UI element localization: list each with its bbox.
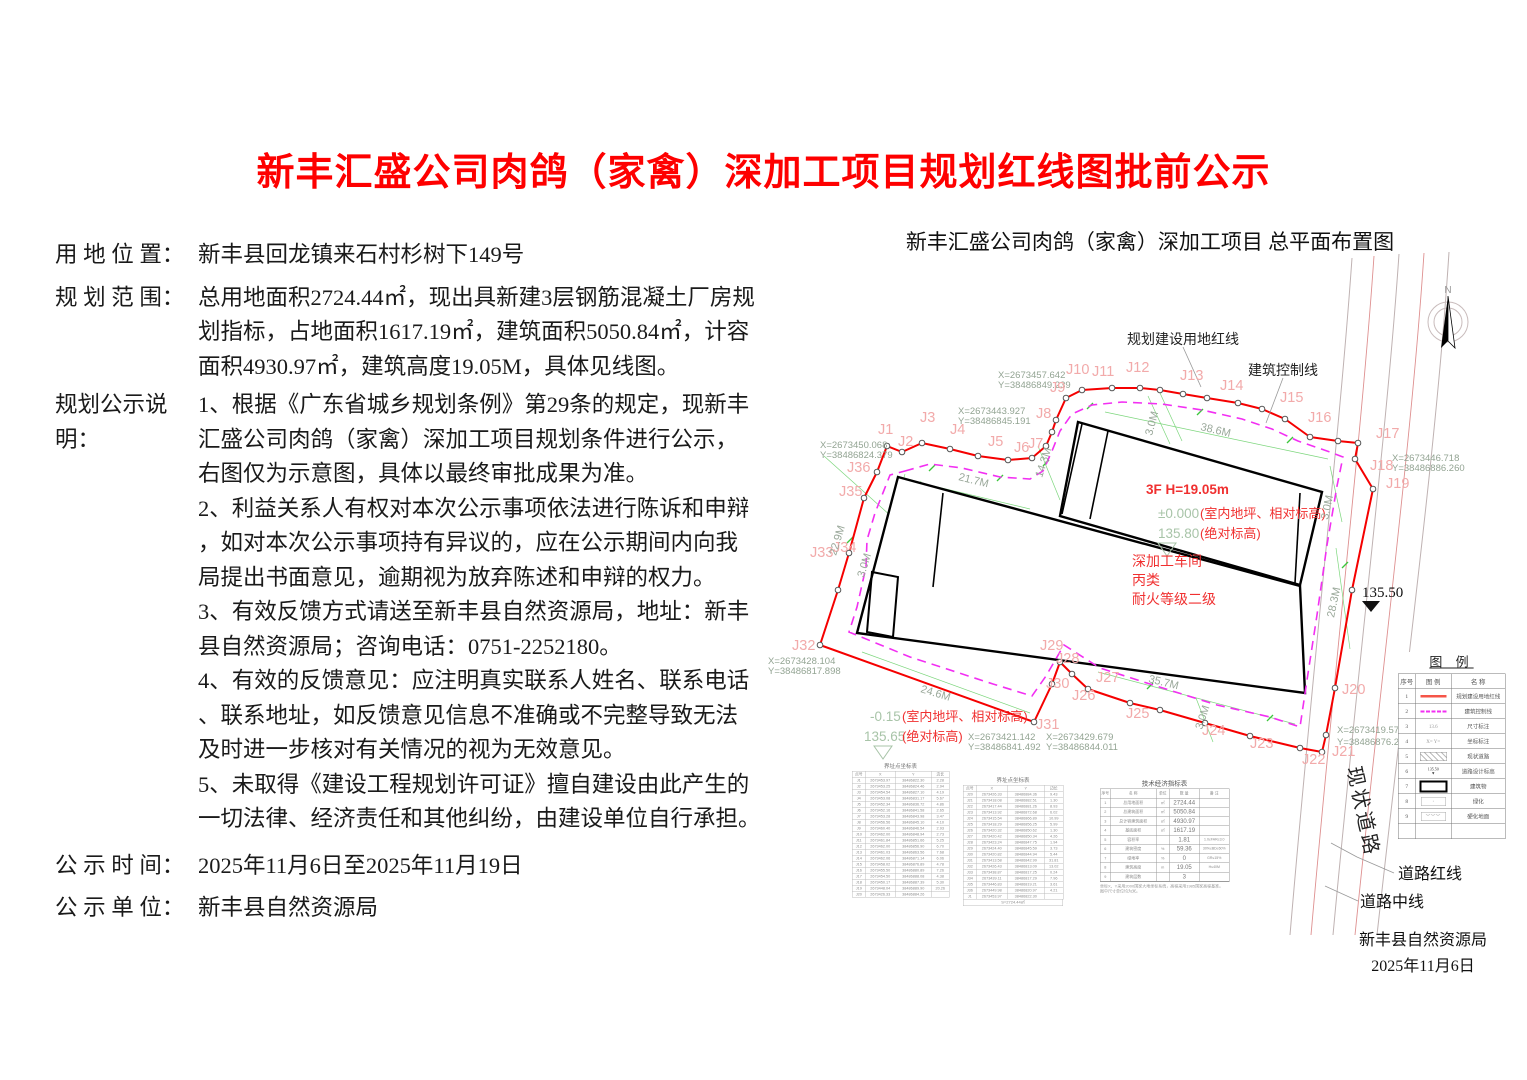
table-header: 序号名 称 单位数 量 备 注 (1100, 789, 1229, 798)
table-cell (1156, 872, 1169, 881)
map-label: J31 (1036, 717, 1059, 733)
scope-label: 规 划 范 围： (55, 281, 198, 385)
boundary-table-1: 界址点坐标表 点号X Y边长 J12673453.9738486822.302.… (852, 762, 949, 898)
map-label: J18 (1370, 458, 1393, 474)
map-label: X=2673419.575 (1337, 725, 1404, 736)
map-label: (室内地坪、相对标高) (1200, 506, 1326, 521)
map-label: J9 (1050, 380, 1065, 396)
table-cell: 1 (1100, 798, 1110, 807)
table-title: 界址点坐标表 (852, 762, 949, 770)
notice-row: 规划公示说明： 1、根据《广东省城乡规划条例》第29条的规定，现新丰 汇盛公司肉… (55, 388, 765, 837)
table-cell (1199, 807, 1229, 816)
table-cell: 7 (1100, 854, 1110, 863)
table-row: J202673426.3338486884.26 (852, 891, 949, 897)
text-line: 5、未取得《建设工程规划许可证》擅自建设由此产生的 (198, 768, 761, 803)
table-title: 技术经济指标表 (1100, 778, 1229, 788)
boundary-vertex (1259, 406, 1265, 412)
table-footer: S=2724.44㎡ (963, 900, 1063, 907)
table-row: 5容积率1.811.0≤FAR≤3.0 (1100, 835, 1229, 844)
time-value: 2025年11月6日至2025年11月19日 (198, 849, 523, 884)
boundary-vertex (1355, 440, 1361, 446)
table-cell: 总用地面积 (1110, 798, 1156, 807)
table-cell: 5 (1100, 835, 1110, 844)
text-line: 汇盛公司肉鸽（家禽）深加工项目规划条件进行公示， (198, 423, 761, 458)
text-line: 县自然资源局；咨询电话：0751-2252180。 (198, 630, 761, 665)
table-cell: GR≤15% (1199, 854, 1229, 863)
control-line-glyph (1420, 710, 1446, 712)
unit-row: 公 示 单 位： 新丰县自然资源局 (55, 891, 765, 926)
table-cell (1199, 881, 1229, 882)
map-label: ±0.000 (1158, 506, 1199, 521)
unit-label: 公 示 单 位： (55, 891, 198, 926)
boundary-vertex (1137, 385, 1143, 391)
time-row: 公 示 时 间： 2025年11月6日至2025年11月19日 (55, 849, 765, 884)
map-label: (室内地坪、相对标高) (902, 709, 1028, 724)
table-row: 4基底面积㎡1617.19 (1100, 826, 1229, 835)
planning-notice-page: 新丰汇盛公司肉鸽（家禽）深加工项目规划红线图批前公示 用 地 位 置： 新丰县回… (0, 0, 1527, 1080)
boundary-vertex (899, 449, 905, 455)
text-line: 2、利益关系人有权对本次公示事项依法进行陈诉和申辩 (198, 492, 761, 527)
location-label: 用 地 位 置： (55, 238, 198, 273)
boundary-vertex (947, 446, 953, 452)
table-cell: % (1156, 844, 1169, 853)
map-label: J3 (920, 410, 935, 426)
legend-row: 8· 绿化 (1398, 794, 1505, 809)
table-cell: 3 (1169, 872, 1199, 881)
boundary-vertex (919, 440, 925, 446)
time-label: 公 示 时 间： (55, 849, 198, 884)
table-row: 2总建筑面积㎡5050.84 (1100, 807, 1229, 816)
map-label: J26 (1072, 688, 1095, 704)
scope-value: 总用地面积2724.44㎡，现出具新建3层钢筋混凝土厂房规 划指标，占地面积16… (198, 281, 755, 385)
table-cell (1156, 835, 1169, 844)
table-cell (1044, 893, 1063, 899)
map-label: N (1444, 285, 1451, 296)
table-cell: 总计容建筑面积 (1110, 817, 1156, 826)
boundary-table-2: 界址点坐标表 点号X Y边长 J202673426.3338486884.369… (963, 776, 1063, 906)
map-label: J36 (847, 460, 870, 476)
signature-date: 2025年11月6日 (1318, 954, 1527, 980)
boundary-vertex (1005, 457, 1011, 463)
map-label: 丙类 (1132, 572, 1160, 588)
table-cell: 8 (1100, 863, 1110, 872)
legend-row: 5 现状道路 (1398, 749, 1505, 764)
map-label: J10 (1066, 362, 1089, 378)
map-label: J14 (1220, 378, 1243, 394)
table-cell: H≤40M (1199, 863, 1229, 872)
boundary-vertex (1235, 400, 1241, 406)
text-line: 划指标，占地面积1617.19㎡，建筑面积5050.84㎡，计容 (198, 315, 755, 350)
table-cell: 3 (1100, 817, 1110, 826)
legend-row: 7 建筑物 (1398, 779, 1505, 794)
table-row: 6建筑密度%59.3630%≤BD≤60% (1100, 844, 1229, 853)
text-line: 4、有效的反馈意见：应注明真实联系人姓名、联系电话 (198, 664, 761, 699)
boundary-vertex (1049, 429, 1055, 435)
north-arrow-icon (1428, 296, 1468, 348)
elevation-glyph: 135.50▼ (1416, 767, 1452, 775)
table-cell: 19.05 (1169, 863, 1199, 872)
legend-row: 313.6 尺寸标注 (1398, 719, 1505, 734)
map-label: 道路中线 (1360, 893, 1424, 911)
map-label: J5 (988, 434, 1003, 450)
info-pane: 用 地 位 置： 新丰县回龙镇来石村杉树下149号 规 划 范 围： 总用地面积… (55, 238, 765, 926)
text-line: 一切法律、经济责任和其他纠纷，由建设单位自行承担。 (198, 802, 761, 837)
table-cell: 1.0≤FAR≤3.0 (1199, 835, 1229, 844)
table-title: 界址点坐标表 (963, 776, 1063, 784)
legend-row (1398, 824, 1505, 839)
text-line: 右图仅为示意图，具体以最终审批成果为准。 (198, 457, 761, 492)
red-line-glyph (1420, 695, 1446, 698)
boundary-vertex (1029, 455, 1035, 461)
text-line: ，如对本次公示事项持有异议的，应在公示期间内向我 (198, 526, 761, 561)
table-cell (931, 891, 949, 897)
map-label: Y=38486845.191 (958, 416, 1031, 427)
coordinate-glyph: X= Y= (1426, 739, 1440, 745)
boundary-vertex (835, 587, 841, 593)
table-cell: 5050.84 (1169, 807, 1199, 816)
map-label: 24.6M (919, 683, 952, 703)
table-cell: 0 (1169, 854, 1199, 863)
table-cell: 2673453.97 (976, 893, 1007, 899)
table-cell: m (1156, 863, 1169, 872)
dimension-glyph: 13.6 (1429, 724, 1438, 730)
map-label: J8 (1036, 406, 1051, 422)
map-label: J1 (878, 422, 893, 438)
table-row: 1总用地面积㎡2724.44 (1100, 798, 1229, 807)
table-cell (1199, 826, 1229, 835)
map-label: J23 (1250, 736, 1273, 752)
table-cell (1199, 872, 1229, 881)
map-label: 135.65 (864, 729, 905, 744)
legend-row: 9︶︶︶ 硬化地面 (1398, 809, 1505, 824)
map-label: J25 (1126, 706, 1149, 722)
boundary-vertex (1349, 587, 1355, 593)
table-row: 3总计容建筑面积㎡4930.97 (1100, 817, 1229, 826)
boundary-vertex (1323, 732, 1329, 738)
unit-value: 新丰县自然资源局 (198, 891, 378, 926)
map-label: J11 (1092, 364, 1114, 380)
table-cell: 建筑密度 (1110, 844, 1156, 853)
map-label: J21 (1332, 744, 1355, 760)
map-label: 38.6M (1199, 421, 1231, 440)
text-line: 及时进一步核对有关情况的视为无效意见。 (198, 733, 761, 768)
table-cell: 59.36 (1169, 844, 1199, 853)
text-line: 总用地面积2724.44㎡，现出具新建3层钢筋混凝土厂房规 (198, 281, 755, 316)
map-label: 135.50 (1362, 585, 1403, 601)
table-cell (1156, 881, 1169, 882)
table-cell: 30%≤BD≤60% (1199, 844, 1229, 853)
map-label: 建筑控制线 (1248, 362, 1318, 378)
table-cell: 1617.19 (1169, 826, 1199, 835)
legend-row: 6135.50▼ 道路设计标高 (1398, 764, 1505, 779)
legend-row: 1 规划建设用地红线 (1398, 689, 1505, 704)
text-line: 面积4930.97㎡，建筑高度19.05M，具体见线图。 (198, 350, 755, 385)
table-cell: 9 (1100, 872, 1110, 881)
map-label: J15 (1280, 390, 1303, 406)
scope-row: 规 划 范 围： 总用地面积2724.44㎡，现出具新建3层钢筋混凝土厂房规 划… (55, 281, 765, 385)
boundary-vertex (1297, 745, 1303, 751)
notice-label: 规划公示说明： (55, 388, 198, 837)
boundary-vertex (1069, 671, 1075, 677)
map-label: J27 (1096, 670, 1119, 686)
table-row (1100, 881, 1229, 882)
table-cell: J20 (852, 891, 865, 897)
map-label: 135.80 (1158, 526, 1199, 541)
table-cell: 基底面积 (1110, 826, 1156, 835)
boundary-vertex (975, 453, 981, 459)
table-cell: 6 (1100, 844, 1110, 853)
map-label: 规划建设用地红线 (1127, 331, 1239, 347)
map-label: Y=38486841.492 (968, 742, 1041, 753)
map-label: (绝对标高) (1200, 526, 1261, 541)
table-cell: 建筑层数 (1110, 872, 1156, 881)
building-glyph (1419, 780, 1447, 792)
paving-glyph: ︶︶︶ (1421, 812, 1446, 821)
table-cell: 38486884.26 (895, 891, 931, 897)
map-label: 深加工车间 (1132, 553, 1202, 569)
tech-table: 技术经济指标表 序号名 称 单位数 量 备 注 1总用地面积㎡2724.442总… (1100, 778, 1229, 894)
table-notes: 坐标X、Y采用2000国家大地坐标系统，高程采用1985国家高程基准。 图中尺寸… (1100, 884, 1229, 894)
map-label: J30 (1046, 676, 1069, 692)
map-label: J35 (839, 484, 862, 500)
map-label: Y=38486844.011 (1046, 742, 1118, 753)
boundary-vertex (1157, 707, 1163, 713)
map-label: J4 (950, 422, 965, 438)
location-row: 用 地 位 置： 新丰县回龙镇来石村杉树下149号 (55, 238, 765, 273)
text-line: 、联系地址，如反馈意见信息不准确或不完整导致无法 (198, 699, 761, 734)
map-label: (绝对标高) (902, 729, 963, 744)
building-outline (857, 422, 1322, 693)
table-cell: 1.81 (1169, 835, 1199, 844)
map-label: J17 (1376, 426, 1399, 442)
floor-elevation-marker (874, 746, 892, 759)
boundary-vertex (1352, 456, 1358, 462)
boundary-vertex (874, 469, 880, 475)
table-cell: 2673426.33 (865, 891, 895, 897)
map-label: 道路红线 (1398, 865, 1462, 883)
table-row: 9建筑层数3 (1100, 872, 1229, 881)
notice-value: 1、根据《广东省城乡规划条例》第29条的规定，现新丰 汇盛公司肉鸽（家禽）深加工… (198, 388, 761, 837)
table-cell: 2 (1100, 807, 1110, 816)
boundary-vertex (1180, 391, 1186, 397)
table-row: J12673453.9738486822.30 (963, 893, 1063, 899)
boundary-vertex (1204, 395, 1210, 401)
table-cell (1169, 881, 1199, 882)
boundary-vertex (1307, 434, 1313, 440)
table-row: 8建筑高度m19.05H≤40M (1100, 863, 1229, 872)
map-label: -0.15 (870, 709, 901, 724)
signature-block: 新丰县自然资源局 2025年11月6日 (1318, 928, 1527, 980)
boundary-vertex (1109, 385, 1115, 391)
map-label: 现状道路 (1342, 764, 1384, 859)
legend-row: 2 建筑控制线 (1398, 704, 1505, 719)
boundary-vertex (1335, 438, 1341, 444)
table-cell: 绿地率 (1110, 854, 1156, 863)
road-elevation-marker (1362, 601, 1380, 612)
map-label: J19 (1386, 476, 1409, 492)
map-label: 28.3M (1325, 586, 1343, 618)
table-cell: ㎡ (1156, 798, 1169, 807)
road-glyph (1420, 752, 1447, 761)
table-row: 7绿地率%0GR≤15% (1100, 854, 1229, 863)
table-cell (1199, 798, 1229, 807)
table-cell (1110, 881, 1156, 882)
table-cell: 总建筑面积 (1110, 807, 1156, 816)
table-cell: ㎡ (1156, 826, 1169, 835)
map-label: 3F H=19.05m (1146, 482, 1229, 497)
table-cell (1100, 881, 1110, 882)
table-cell: 2724.44 (1169, 798, 1199, 807)
signature-org: 新丰县自然资源局 (1318, 928, 1527, 954)
boundary-vertex (1079, 387, 1085, 393)
table-cell: 4930.97 (1169, 817, 1199, 826)
map-label: J13 (1180, 368, 1203, 384)
text-line: 1、根据《广东省城乡规划条例》第29条的规定，现新丰 (198, 388, 761, 423)
legend-row: 4X= Y= 坐标标注 (1398, 734, 1505, 749)
map-label: J12 (1126, 360, 1149, 376)
boundary-vertex (1127, 700, 1133, 706)
legend-title: 图 例 (1398, 652, 1505, 671)
boundary-vertex (817, 642, 823, 648)
map-label: 耐火等级二级 (1132, 591, 1216, 607)
table-cell: 容积率 (1110, 835, 1156, 844)
map-label: J32 (792, 638, 815, 654)
table-cell: 38486822.30 (1007, 893, 1044, 899)
text-line: 局提出书面意见，逾期视为放弃陈述和申辩的权力。 (198, 561, 761, 596)
map-label: J22 (1302, 752, 1325, 768)
table-cell (1199, 817, 1229, 826)
table-cell: 建筑高度 (1110, 863, 1156, 872)
legend: 图 例 序号图 例名 称 1 规划建设用地红线 2 建筑控制线 313.6 尺寸… (1398, 652, 1505, 839)
map-label: J2 (898, 434, 913, 450)
boundary-vertex (1063, 395, 1069, 401)
table-cell: % (1156, 854, 1169, 863)
boundary-vertex (1053, 417, 1059, 423)
table-cell: J1 (963, 893, 976, 899)
table-cell: ㎡ (1156, 817, 1169, 826)
page-title: 新丰汇盛公司肉鸽（家禽）深加工项目规划红线图批前公示 (0, 141, 1527, 196)
text-line: 3、有效反馈方式请送至新丰县自然资源局，地址：新丰 (198, 595, 761, 630)
legend-header: 序号图 例名 称 (1398, 674, 1505, 689)
boundary-vertex (1282, 416, 1288, 422)
boundary-vertex (1332, 685, 1338, 691)
greenery-glyph: · (1421, 797, 1446, 806)
map-label: Y=38486817.898 (768, 666, 841, 677)
text-line: 图中尺寸单位均为米。 (1100, 889, 1229, 894)
boundary-vertex (1370, 486, 1376, 492)
table-cell: ㎡ (1156, 807, 1169, 816)
map-label: J29 (1040, 638, 1063, 654)
map-label: J20 (1342, 682, 1365, 698)
map-label: J16 (1308, 410, 1331, 426)
map-label: Y=38486886.260 (1392, 463, 1465, 474)
table-cell: 4 (1100, 826, 1110, 835)
boundary-vertex (1157, 387, 1163, 393)
location-value: 新丰县回龙镇来石村杉树下149号 (198, 238, 524, 273)
